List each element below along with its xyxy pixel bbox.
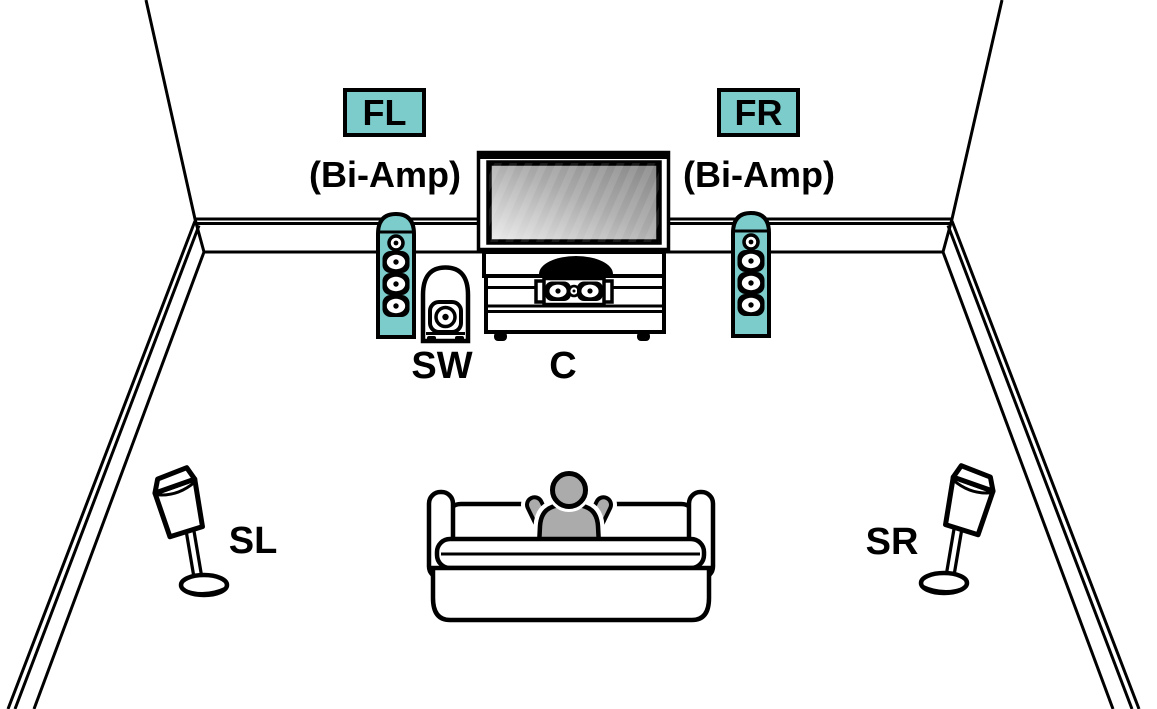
label-biamp-left: (Bi-Amp): [309, 157, 461, 193]
surround-left-speaker: [151, 466, 227, 595]
front-right-speaker: [733, 213, 769, 336]
room-scene: [0, 0, 1157, 709]
sofa-front: [433, 539, 709, 620]
front-right-text: FR: [735, 92, 783, 134]
front-left-speaker: [378, 214, 414, 337]
sofa-base: [433, 568, 709, 620]
tv-stand: [484, 252, 664, 341]
surround-right-speaker: [921, 464, 997, 593]
subwoofer: [423, 268, 468, 343]
center-speaker: [536, 279, 612, 305]
label-center: C: [549, 347, 576, 385]
speaker-layout-diagram: FL FR (Bi-Amp) (Bi-Amp) SW C SL SR: [0, 0, 1157, 709]
listener: [524, 474, 613, 547]
label-front-right: FR: [717, 88, 800, 137]
label-biamp-right: (Bi-Amp): [683, 157, 835, 193]
label-subwoofer: SW: [411, 347, 472, 385]
label-surround-right: SR: [866, 523, 919, 561]
label-front-left: FL: [343, 88, 426, 137]
tv: [478, 151, 669, 250]
front-left-text: FL: [363, 92, 407, 134]
label-surround-left: SL: [229, 522, 278, 560]
